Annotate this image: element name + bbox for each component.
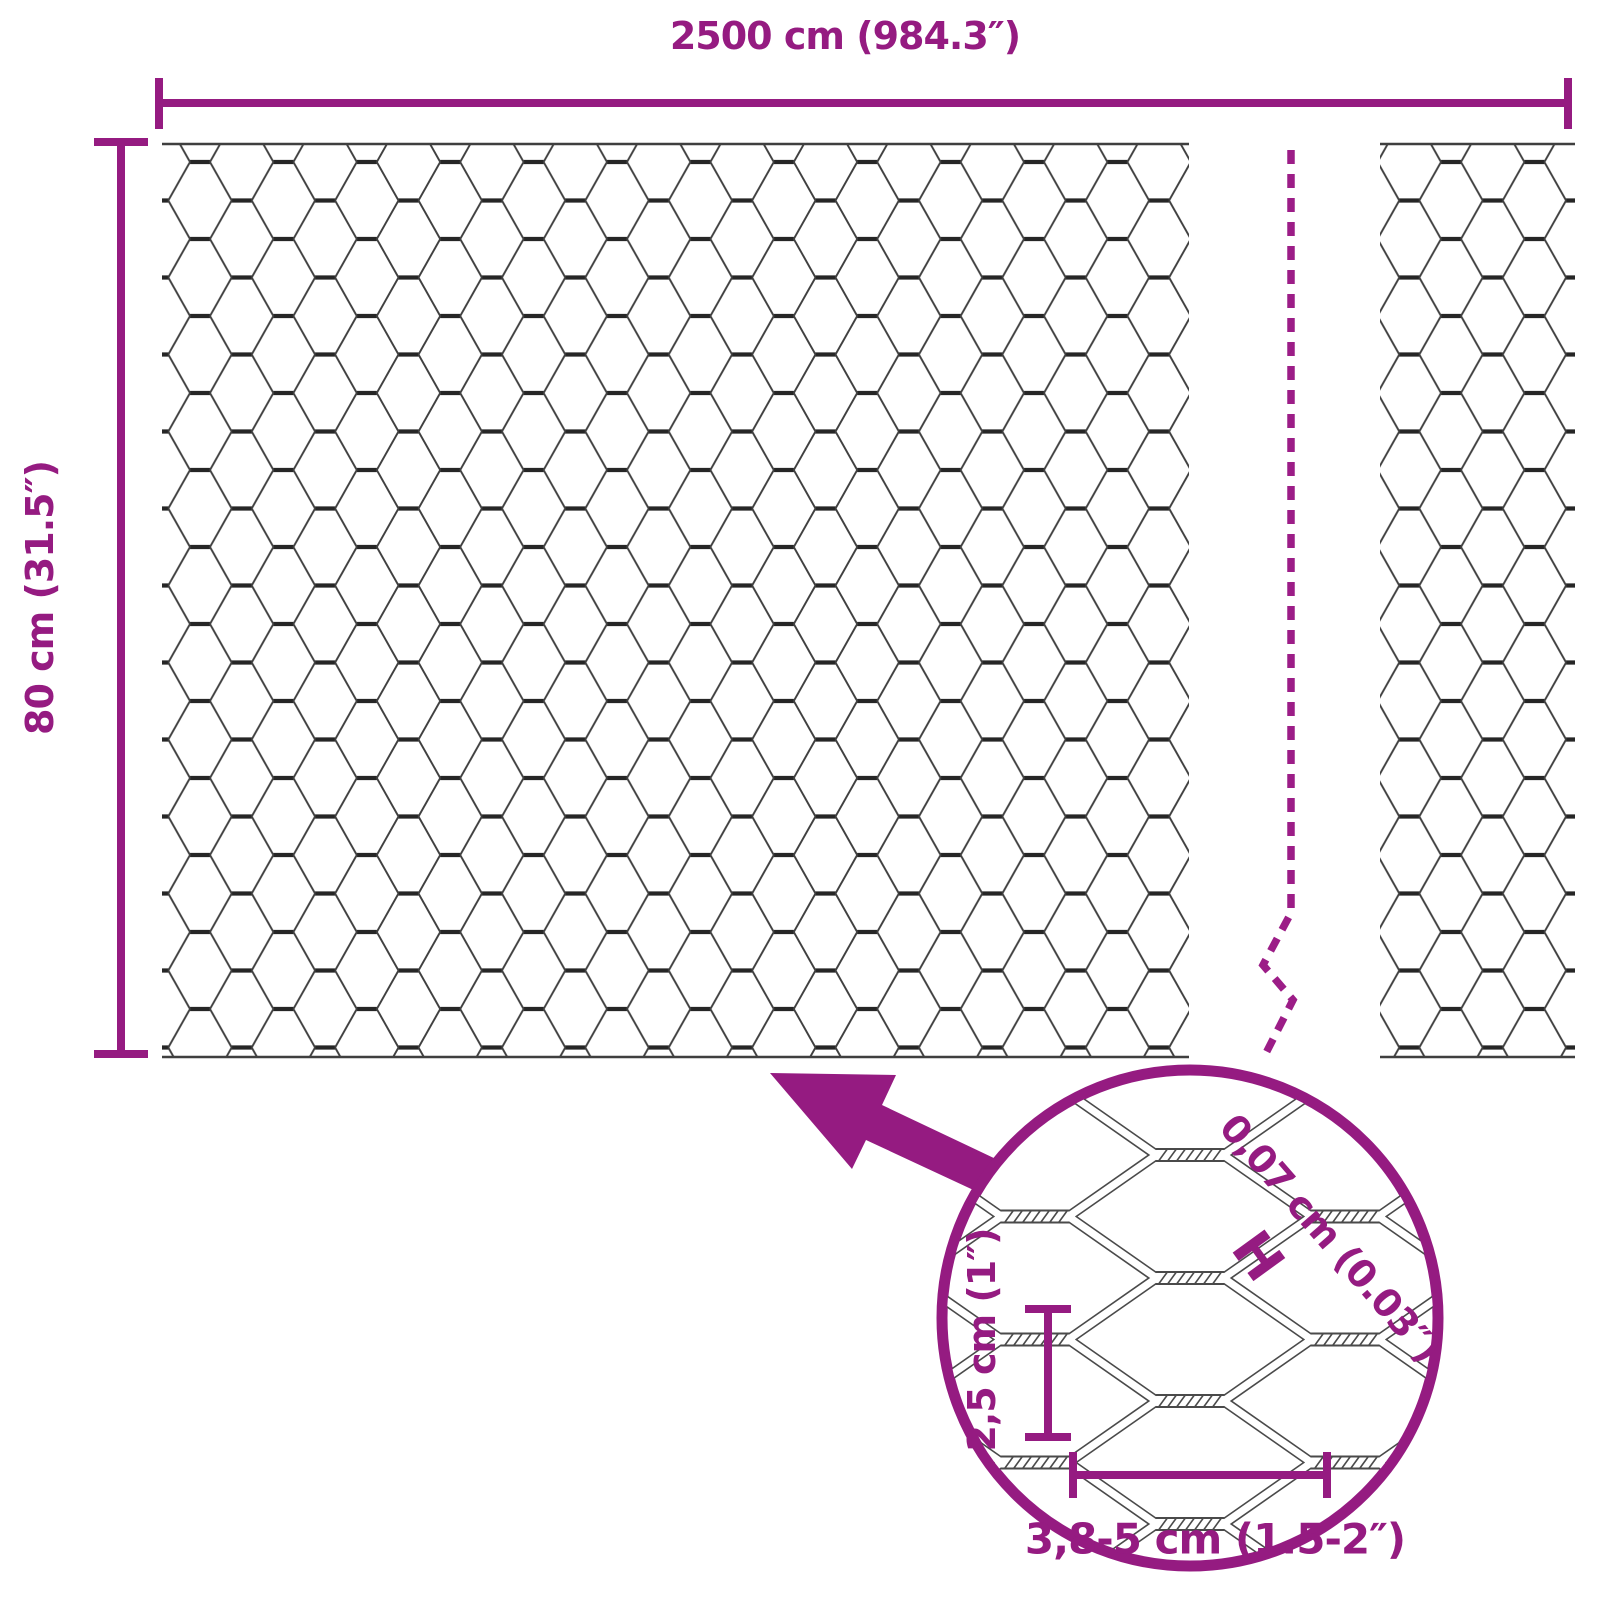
zoom-arrow bbox=[770, 1073, 998, 1194]
height-dimension-label: 80 cm (31.5″) bbox=[18, 461, 62, 735]
mesh-panel-right bbox=[1380, 143, 1575, 1058]
mesh-width-label: 3,8-5 cm (1.5-2″) bbox=[1025, 1515, 1405, 1564]
break-line bbox=[1263, 150, 1293, 1055]
mesh-height-label: 2,5 cm (1″) bbox=[960, 1228, 1004, 1451]
width-dimension: 2500 cm (984.3″) bbox=[159, 14, 1568, 129]
zoom-circle: 0,07 cm (0.03″) H 2,5 cm (1″) 3,8-5 cm (… bbox=[942, 1070, 1449, 1570]
mesh-diagram-canvas: 2500 cm (984.3″) 80 cm (31.5″) 0,07 cm (… bbox=[0, 0, 1600, 1600]
mesh-panel-left bbox=[162, 143, 1189, 1058]
product-dimension-diagram: 2500 cm (984.3″) 80 cm (31.5″) 0,07 cm (… bbox=[0, 0, 1600, 1600]
height-dimension: 80 cm (31.5″) bbox=[18, 142, 148, 1054]
width-dimension-label: 2500 cm (984.3″) bbox=[670, 14, 1020, 58]
